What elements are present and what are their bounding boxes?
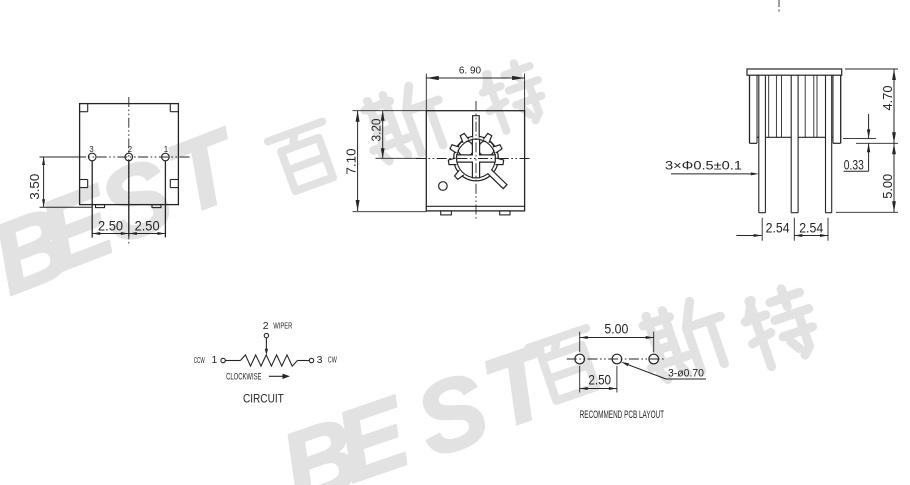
svg-text:3.50: 3.50 — [28, 174, 42, 200]
svg-text:CLOCKWISE: CLOCKWISE — [226, 372, 261, 382]
svg-text:5.00: 5.00 — [604, 321, 628, 337]
svg-text:1: 1 — [164, 145, 169, 154]
svg-text:CW: CW — [328, 355, 337, 364]
svg-text:3: 3 — [317, 354, 323, 366]
svg-text:6. 90: 6. 90 — [459, 66, 482, 77]
svg-text:2.50: 2.50 — [588, 372, 611, 388]
svg-text:2.54: 2.54 — [799, 220, 823, 236]
svg-text:2: 2 — [128, 145, 133, 154]
svg-text:RECOMMEND PCB LAYOUT: RECOMMEND PCB LAYOUT — [580, 409, 665, 421]
svg-text:1: 1 — [211, 354, 217, 366]
svg-text:3.20: 3.20 — [369, 119, 384, 142]
svg-text:3: 3 — [89, 145, 94, 154]
svg-text:CCW: CCW — [194, 356, 205, 365]
svg-text:3×Φ0.5±0.1: 3×Φ0.5±0.1 — [665, 158, 742, 172]
svg-text:WIPER: WIPER — [273, 322, 292, 331]
svg-text:3-ø0.70: 3-ø0.70 — [668, 367, 704, 379]
svg-text:CIRCUIT: CIRCUIT — [243, 392, 284, 406]
svg-text:7.10: 7.10 — [344, 149, 359, 175]
svg-text:0.33: 0.33 — [844, 156, 864, 172]
svg-text:2: 2 — [263, 320, 269, 332]
svg-text:5.00: 5.00 — [880, 174, 895, 199]
svg-text:2.50: 2.50 — [98, 218, 123, 234]
svg-text:2.54: 2.54 — [766, 220, 790, 236]
svg-text:2.50: 2.50 — [135, 218, 160, 234]
svg-text:4.70: 4.70 — [880, 86, 895, 111]
